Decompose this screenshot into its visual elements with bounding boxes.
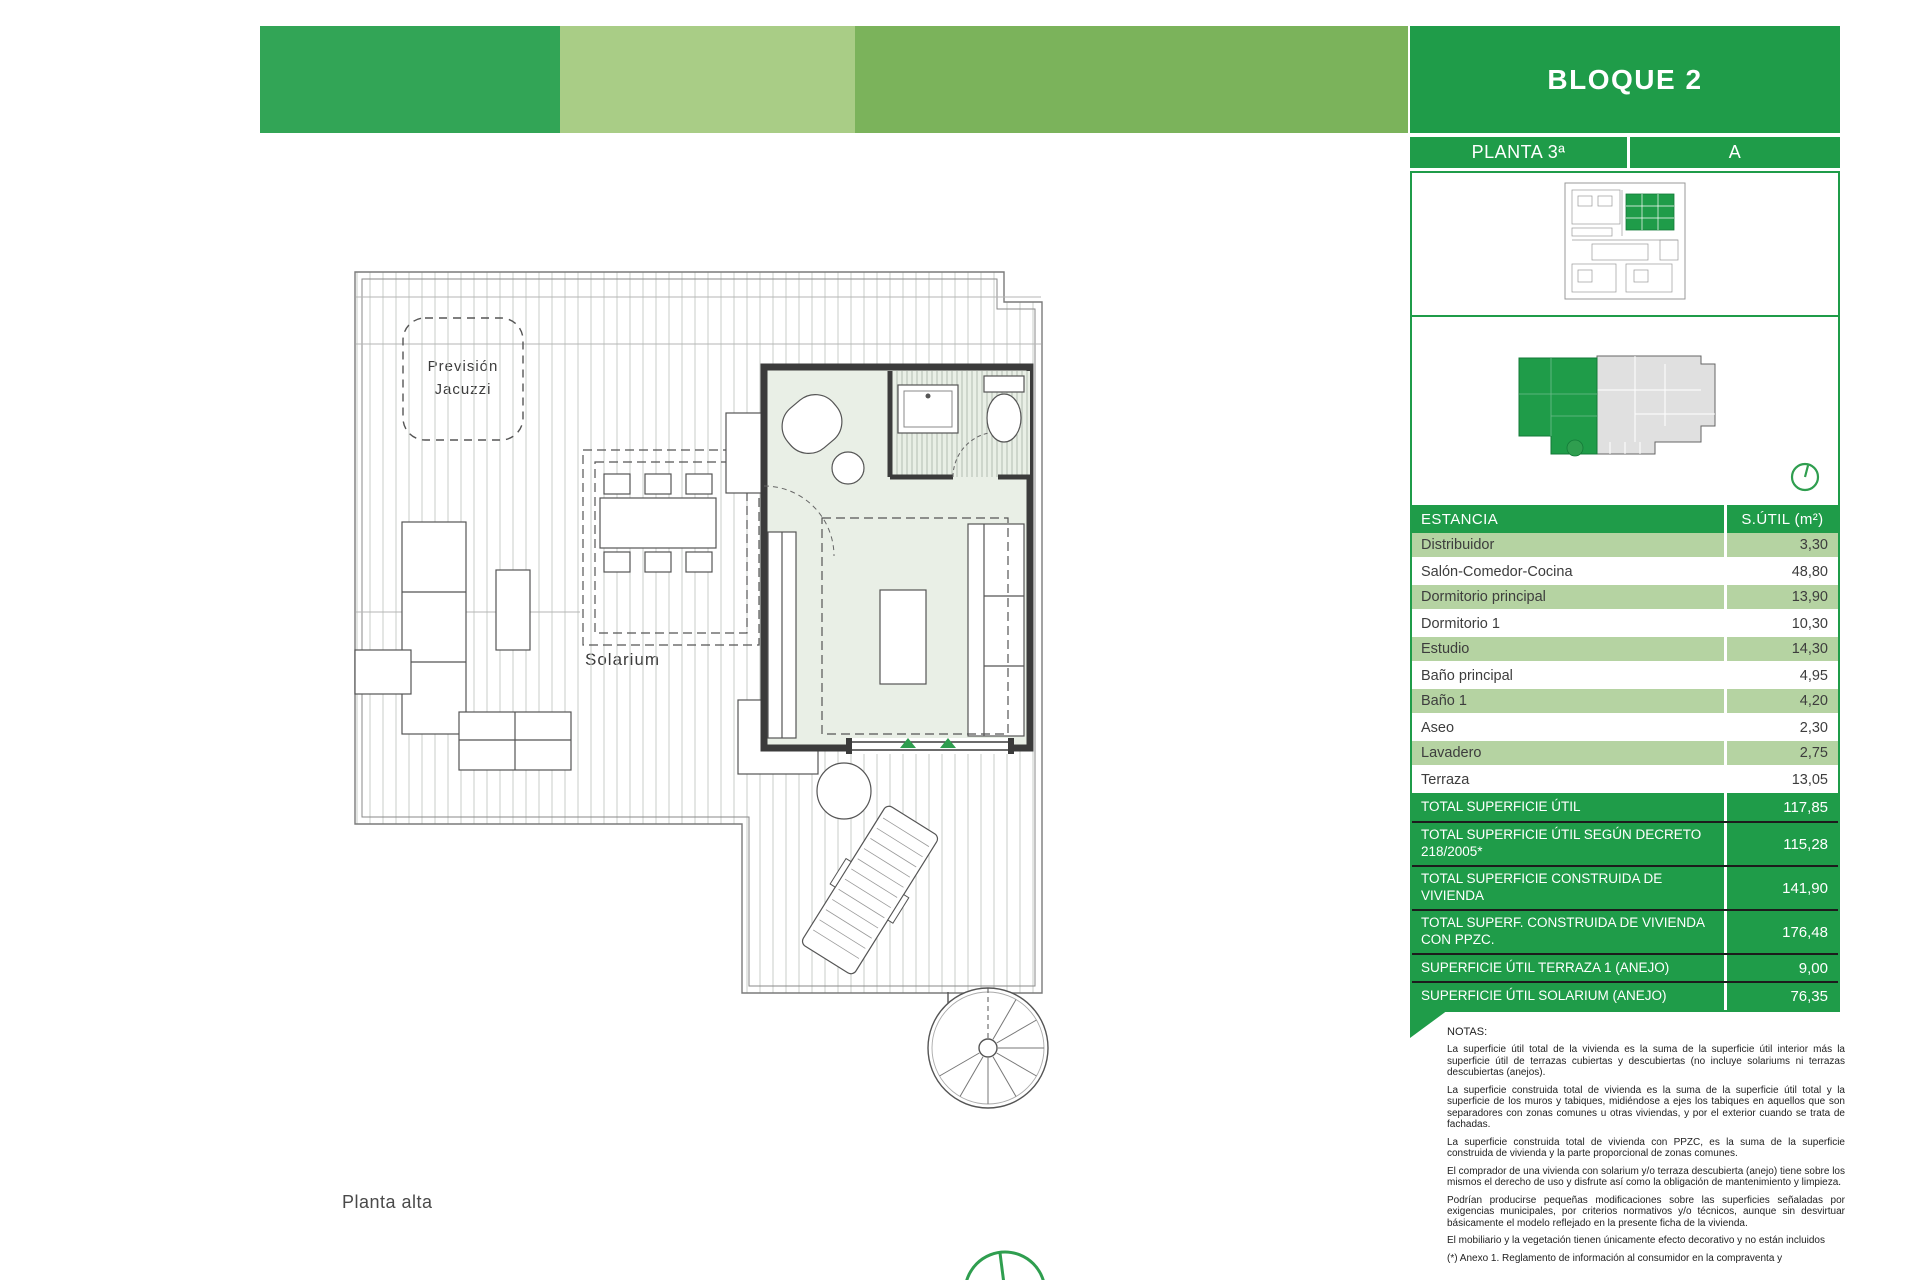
planter-top	[726, 413, 764, 493]
spiral-staircase	[928, 988, 1048, 1108]
floor-plan-sheet: Previsión Jacuzzi Aseo Estudio Solarium …	[0, 0, 1920, 1280]
north-arrow-icon	[965, 1252, 1045, 1280]
studio-room	[764, 367, 1030, 754]
aseo-room	[890, 371, 1030, 477]
window-wall	[846, 738, 1014, 754]
floor-plan-drawing	[0, 0, 1920, 1280]
